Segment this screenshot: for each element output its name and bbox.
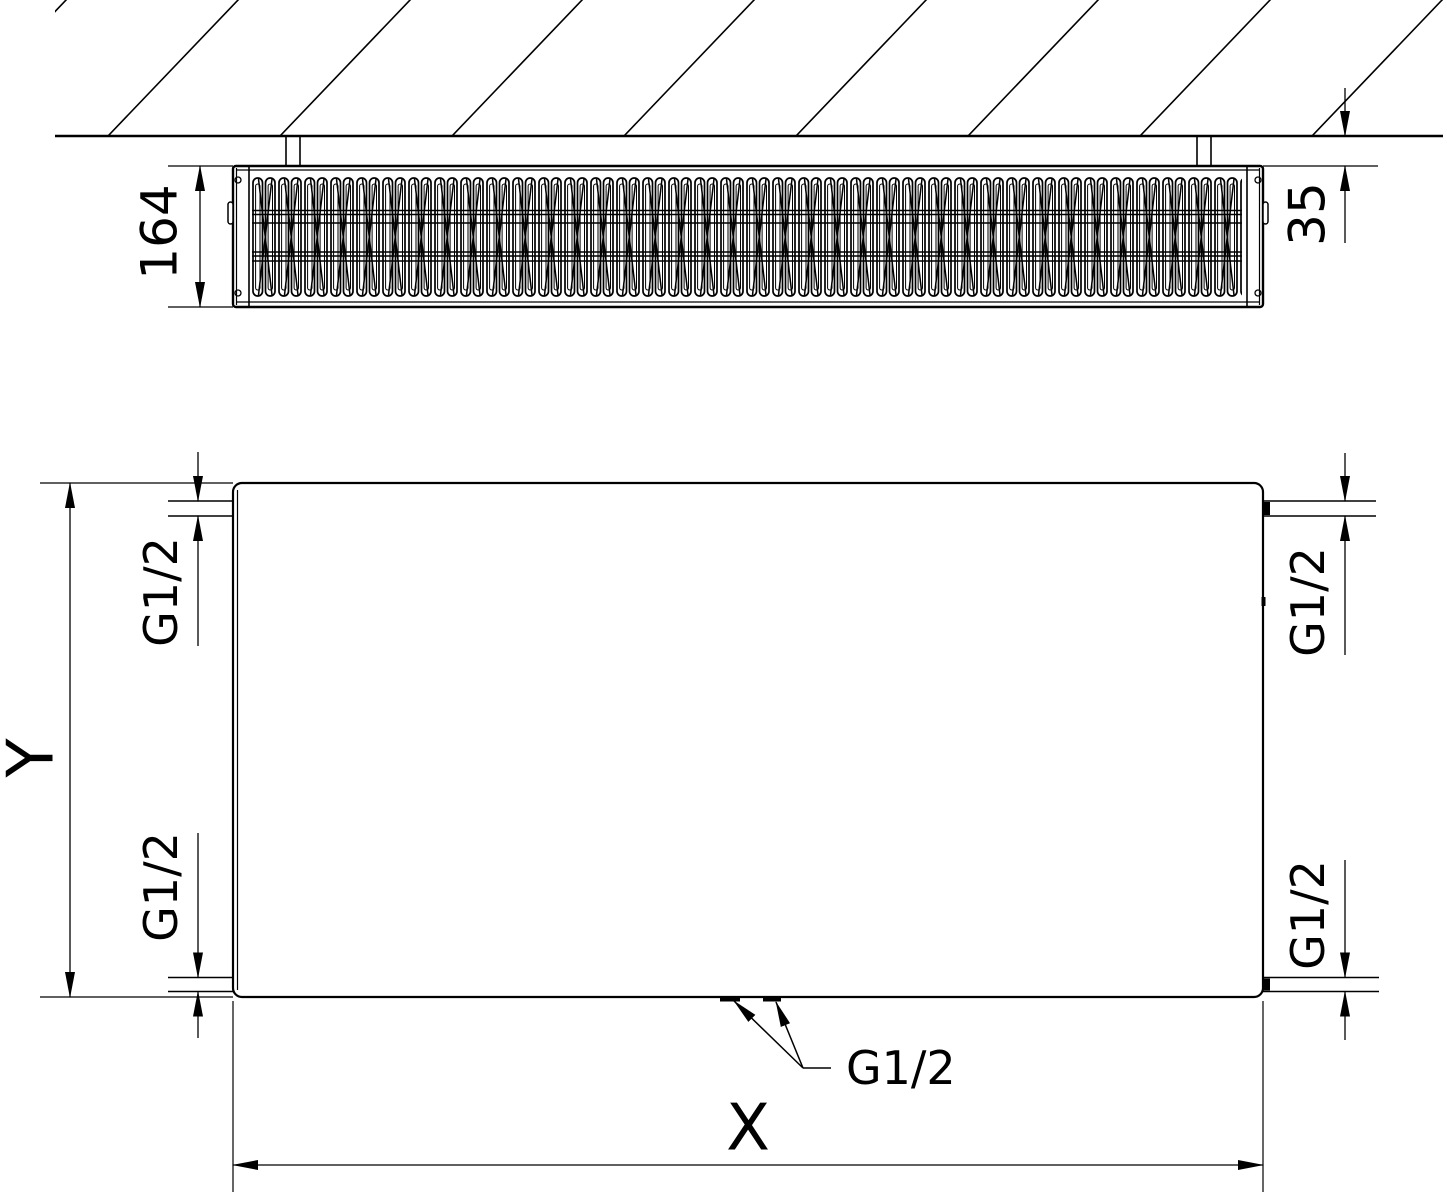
dimension-height-Y: Y <box>0 483 70 997</box>
connection-stub-bottom-left <box>168 978 233 992</box>
fin-pattern <box>252 177 1242 297</box>
g12-bottom-right-value: G1/2 <box>1281 860 1335 970</box>
wall-hatching <box>0 0 1443 136</box>
mounting-bracket-right <box>1197 136 1211 166</box>
g12-bottom-center-value: G1/2 <box>846 1041 956 1095</box>
connection-stub-top-right <box>1263 501 1376 516</box>
connection-stub-bottom-right <box>1263 978 1379 992</box>
dimension-g12-top-left: G1/2 <box>134 452 198 647</box>
side-tab-left <box>228 202 233 224</box>
width-value: X <box>726 1091 770 1165</box>
radiator-front-panel <box>233 483 1266 1000</box>
dimension-g12-top-right: G1/2 <box>1281 453 1345 657</box>
front-view: Y X G1/2 G1/2 G1/2 G1/2 <box>0 452 1379 1192</box>
g12-bottom-left-value: G1/2 <box>134 832 188 942</box>
dimension-g12-bottom-right: G1/2 <box>1281 860 1345 1040</box>
technical-drawing-page: 164 35 <box>0 0 1447 1201</box>
radiator-top-view <box>228 166 1268 307</box>
g12-top-left-value: G1/2 <box>134 537 188 647</box>
dimension-width-X: X <box>233 1091 1263 1165</box>
dimension-depth-164: 164 <box>131 166 201 307</box>
connection-stub-top-left <box>168 501 233 516</box>
g12-top-right-value: G1/2 <box>1281 547 1335 657</box>
edge-nub-right <box>1262 597 1266 606</box>
height-value: Y <box>0 738 68 779</box>
side-tab-right <box>1263 202 1268 224</box>
radiator-drawing: 164 35 <box>0 0 1447 1201</box>
mounting-bracket-left <box>286 136 300 166</box>
top-view: 164 35 <box>0 0 1443 307</box>
dimension-g12-bottom-left: G1/2 <box>134 832 198 1038</box>
wall-clearance-value: 35 <box>1279 182 1337 246</box>
depth-value: 164 <box>131 184 189 279</box>
leader-g12-bottom-center: G1/2 <box>734 1001 956 1095</box>
